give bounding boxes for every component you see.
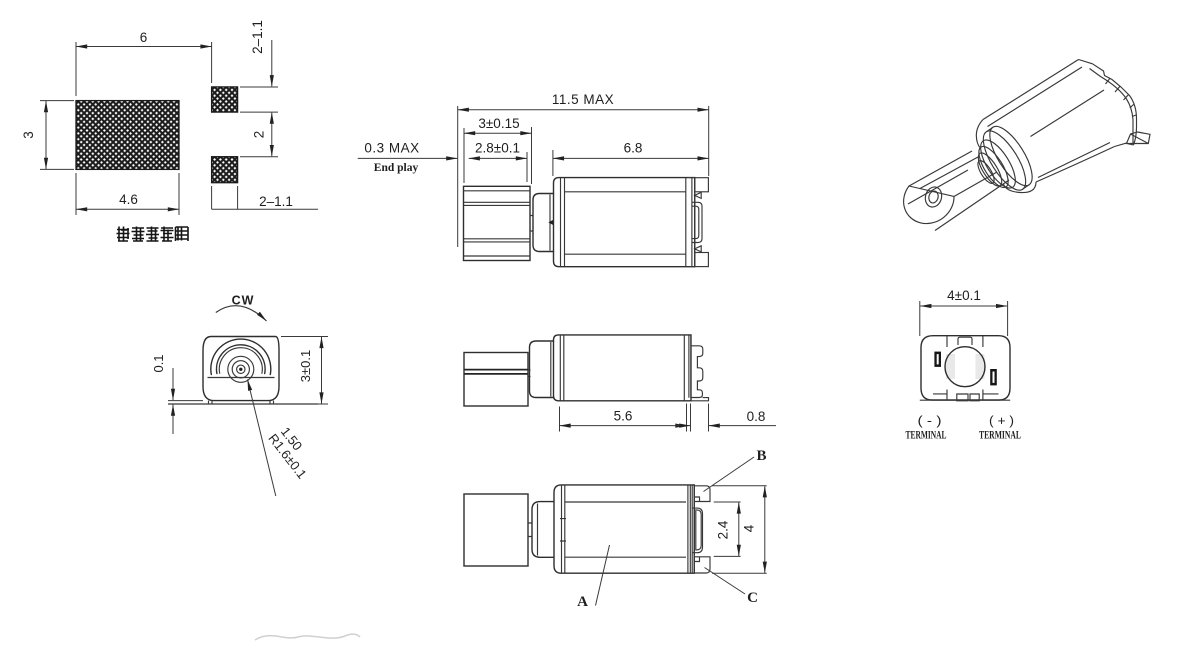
svg-text:3: 3 [21,131,36,139]
svg-text:2.8±0.1: 2.8±0.1 [475,141,520,156]
svg-text:TERMINAL: TERMINAL [979,430,1021,442]
svg-text:5.6: 5.6 [614,409,633,424]
svg-text:3±0.15: 3±0.15 [478,116,519,131]
svg-text:2: 2 [252,131,267,139]
svg-text:B: B [756,448,766,464]
svg-text:0.1: 0.1 [151,354,166,372]
svg-text:TERMINAL: TERMINAL [906,430,947,442]
svg-text:6.8: 6.8 [624,141,643,156]
svg-text:A: A [577,594,588,610]
svg-text:2.4: 2.4 [716,520,731,539]
svg-text:End play: End play [374,162,419,174]
svg-text:3±0.1: 3±0.1 [298,350,313,382]
svg-text:( + ): ( + ) [989,413,1014,428]
svg-text:2–1.1: 2–1.1 [250,20,265,54]
svg-text:2–1.1: 2–1.1 [259,194,293,209]
svg-text:4: 4 [742,524,757,532]
svg-text:( - ): ( - ) [918,413,942,428]
svg-text:4.6: 4.6 [119,192,138,207]
svg-text:C: C [747,590,758,606]
svg-text:11.5 MAX: 11.5 MAX [552,92,614,107]
svg-text:0.8: 0.8 [747,409,766,424]
svg-text:6: 6 [140,30,148,45]
svg-text:4±0.1: 4±0.1 [947,288,981,303]
svg-text:0.3 MAX: 0.3 MAX [364,141,419,156]
